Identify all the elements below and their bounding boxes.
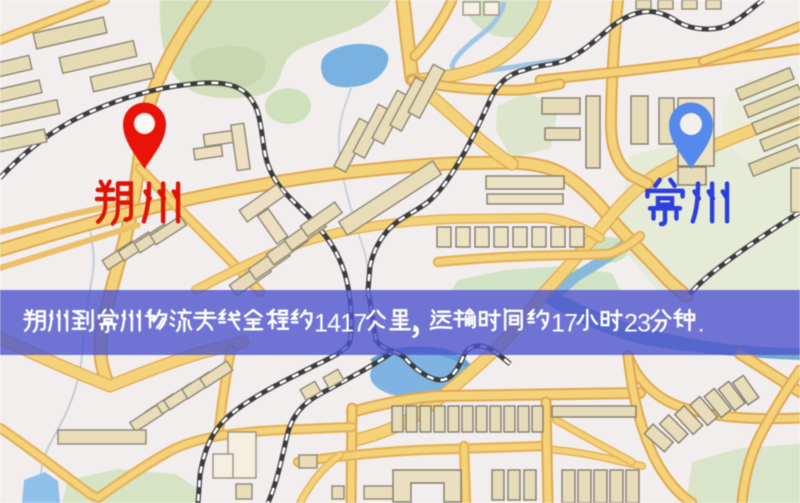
svg-text:17: 17 <box>551 310 577 338</box>
svg-text:1417: 1417 <box>314 310 366 338</box>
svg-text:.: . <box>698 311 704 337</box>
svg-text:23: 23 <box>624 310 650 338</box>
